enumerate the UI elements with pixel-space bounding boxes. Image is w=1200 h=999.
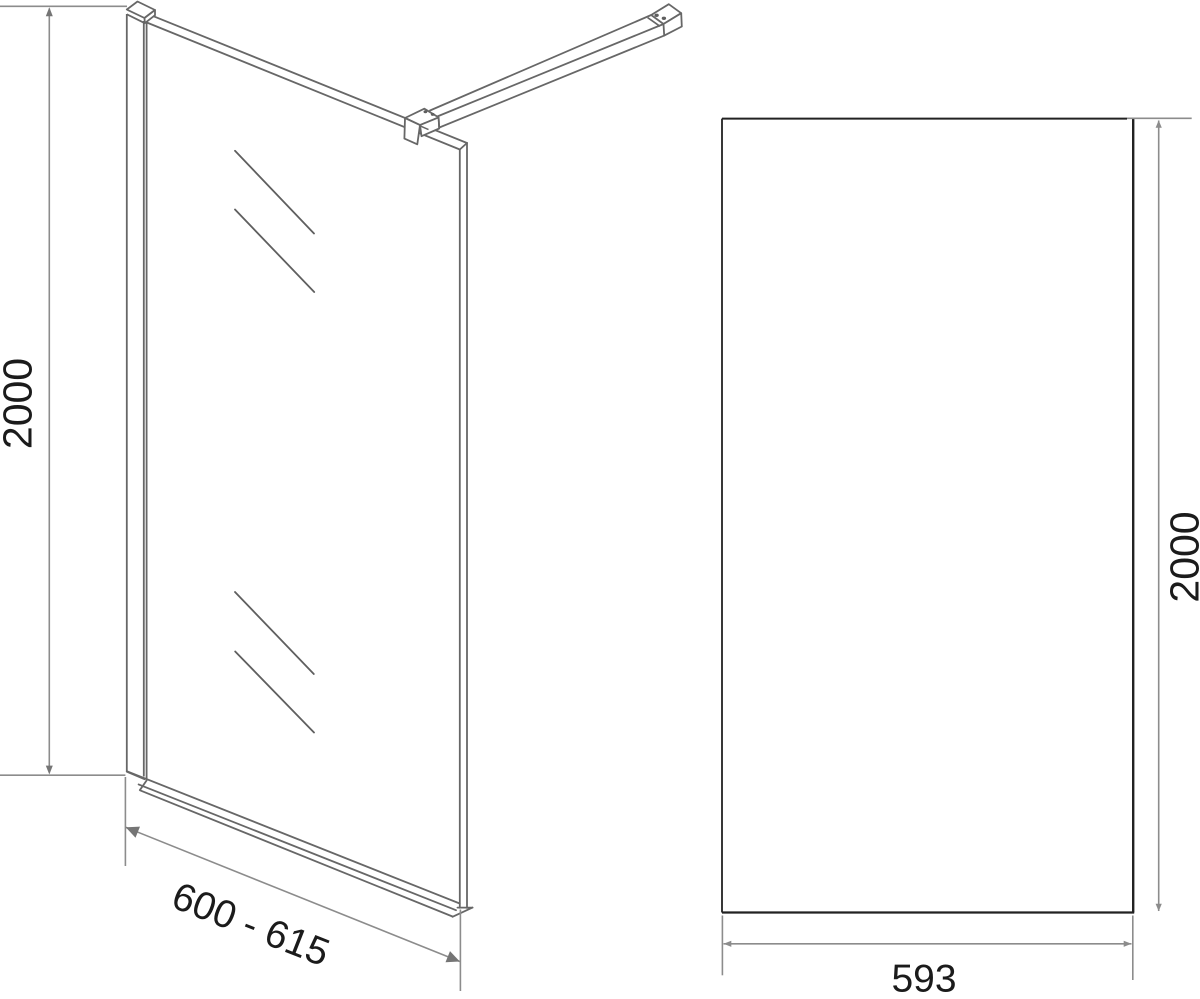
svg-text:593: 593 [891,958,956,999]
svg-text:2000: 2000 [1162,511,1200,602]
svg-text:600 - 615: 600 - 615 [166,875,335,975]
svg-text:2000: 2000 [0,358,41,449]
